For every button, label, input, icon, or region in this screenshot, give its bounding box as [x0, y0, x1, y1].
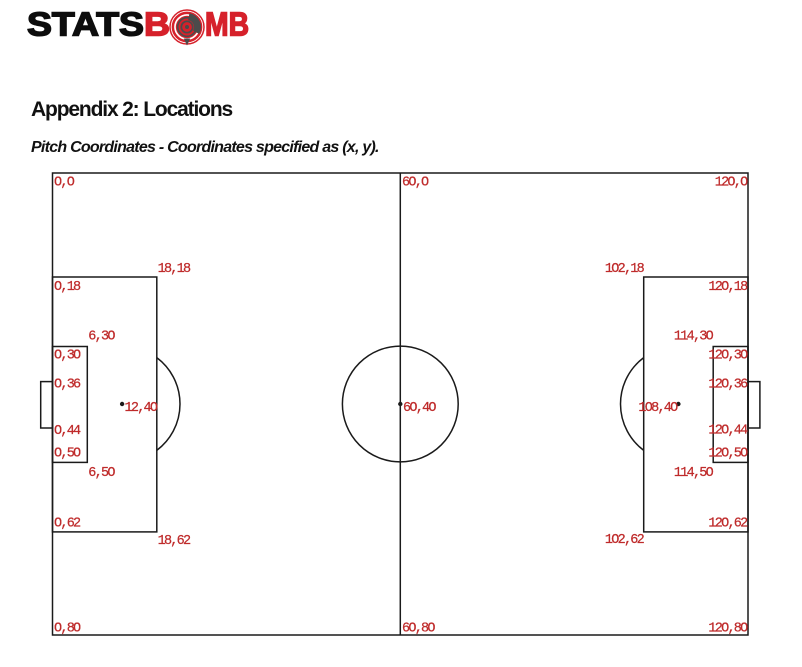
- svg-text:6O,O: 6O,O: [402, 176, 429, 191]
- svg-text:114,5O: 114,5O: [674, 466, 714, 481]
- svg-text:6,5O: 6,5O: [88, 466, 115, 481]
- svg-text:12O,36: 12O,36: [708, 378, 748, 393]
- svg-text:114,3O: 114,3O: [674, 330, 714, 345]
- svg-text:O,O: O,O: [54, 176, 75, 191]
- svg-text:6O,8O: 6O,8O: [402, 622, 435, 637]
- svg-text:18,18: 18,18: [158, 262, 191, 277]
- svg-text:18,62: 18,62: [158, 534, 191, 549]
- svg-text:1O2,18: 1O2,18: [605, 262, 645, 277]
- svg-text:1O8,4O: 1O8,4O: [638, 401, 678, 416]
- svg-text:6,3O: 6,3O: [88, 330, 115, 345]
- svg-text:12O,3O: 12O,3O: [708, 349, 748, 364]
- svg-text:12O,O: 12O,O: [715, 176, 748, 191]
- svg-text:12O,5O: 12O,5O: [708, 447, 748, 462]
- svg-text:O,5O: O,5O: [54, 447, 81, 462]
- svg-text:12O,44: 12O,44: [708, 424, 748, 439]
- svg-text:O,44: O,44: [54, 424, 81, 439]
- svg-text:6O,4O: 6O,4O: [403, 401, 436, 416]
- svg-text:12O,62: 12O,62: [708, 517, 748, 532]
- svg-text:12,4O: 12,4O: [125, 401, 158, 416]
- svg-text:O,8O: O,8O: [54, 622, 81, 637]
- svg-text:O,18: O,18: [54, 280, 81, 295]
- svg-text:12O,18: 12O,18: [708, 280, 748, 295]
- svg-text:O,3O: O,3O: [54, 349, 81, 364]
- svg-text:O,62: O,62: [54, 517, 81, 532]
- svg-text:1O2,62: 1O2,62: [605, 533, 645, 548]
- svg-text:O,36: O,36: [54, 378, 81, 393]
- svg-text:12O,8O: 12O,8O: [708, 622, 748, 637]
